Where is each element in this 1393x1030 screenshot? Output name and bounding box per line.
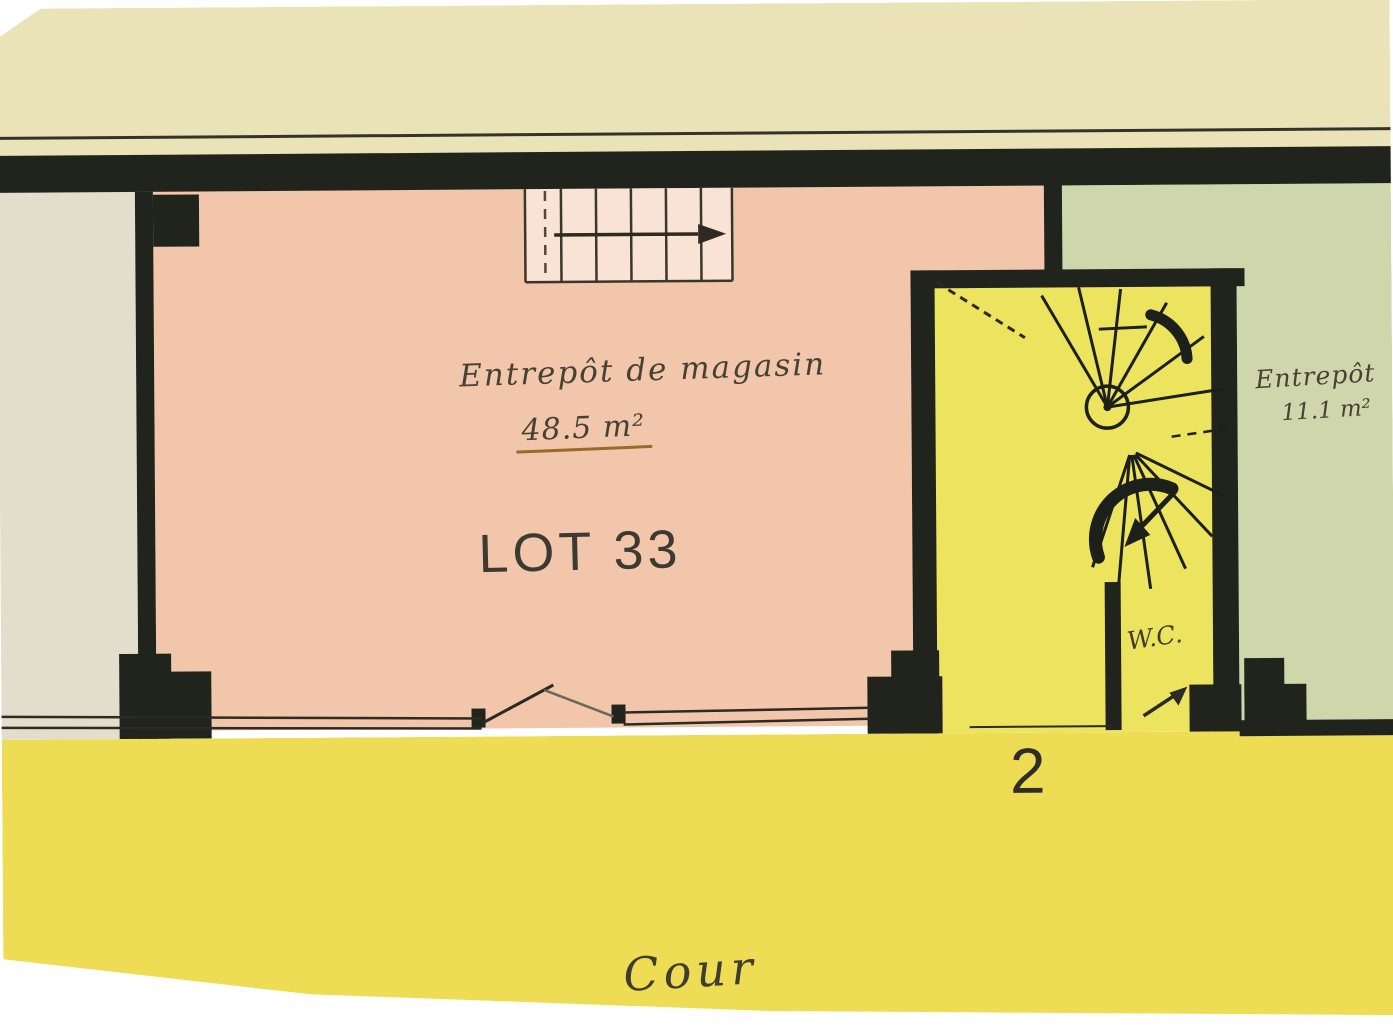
label-lot-number: LOT 33 [478, 518, 683, 585]
wall-stairhall-top [910, 268, 1244, 288]
pier-bottom-left-step [153, 671, 211, 738]
adjacent-room-left [0, 192, 139, 740]
door-jamb-left [471, 708, 485, 727]
label-main-storeroom-area: 48.5 m² [515, 408, 652, 454]
scanned-floor-plan: Entrepôt de magasin 48.5 m² LOT 33 W.C. … [0, 0, 1393, 1030]
wall-stairhall-right [1210, 268, 1239, 731]
pier-stairhall-left-step [867, 676, 942, 734]
wall-pink-green-separation [1044, 183, 1063, 279]
wall-wc-left [1105, 582, 1122, 730]
wall-pilaster-top-left [153, 194, 199, 246]
label-entrance-number: 2 [1010, 734, 1046, 808]
label-small-storeroom-area: 11.1 m² [1281, 395, 1372, 426]
plan-sheet: Entrepôt de magasin 48.5 m² LOT 33 W.C. … [0, 0, 1393, 1030]
door-jamb-right [611, 705, 625, 724]
label-courtyard: Cour [622, 940, 759, 1002]
room-main-storeroom [153, 187, 914, 731]
wall-wc-corner [1189, 684, 1241, 731]
stair-hall [929, 282, 1218, 733]
pier-bottom-right-step [1244, 684, 1306, 730]
